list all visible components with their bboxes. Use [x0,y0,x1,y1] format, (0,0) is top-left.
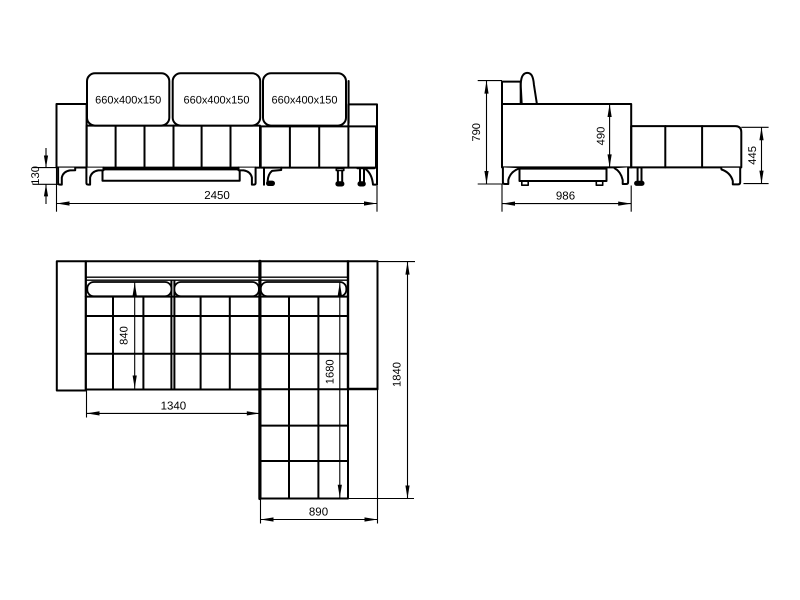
svg-text:660x400x150: 660x400x150 [95,95,161,107]
svg-text:986: 986 [556,190,575,202]
svg-text:660x400x150: 660x400x150 [183,95,249,107]
svg-text:1680: 1680 [324,359,336,384]
svg-text:840: 840 [119,326,131,345]
svg-text:1340: 1340 [161,400,187,412]
svg-text:445: 445 [747,146,759,165]
svg-text:2450: 2450 [204,190,230,202]
svg-text:890: 890 [309,506,328,518]
svg-text:490: 490 [595,127,607,146]
svg-text:790: 790 [471,123,483,142]
svg-text:660x400x150: 660x400x150 [271,95,337,107]
svg-text:130: 130 [30,166,42,185]
svg-text:1840: 1840 [392,362,404,387]
